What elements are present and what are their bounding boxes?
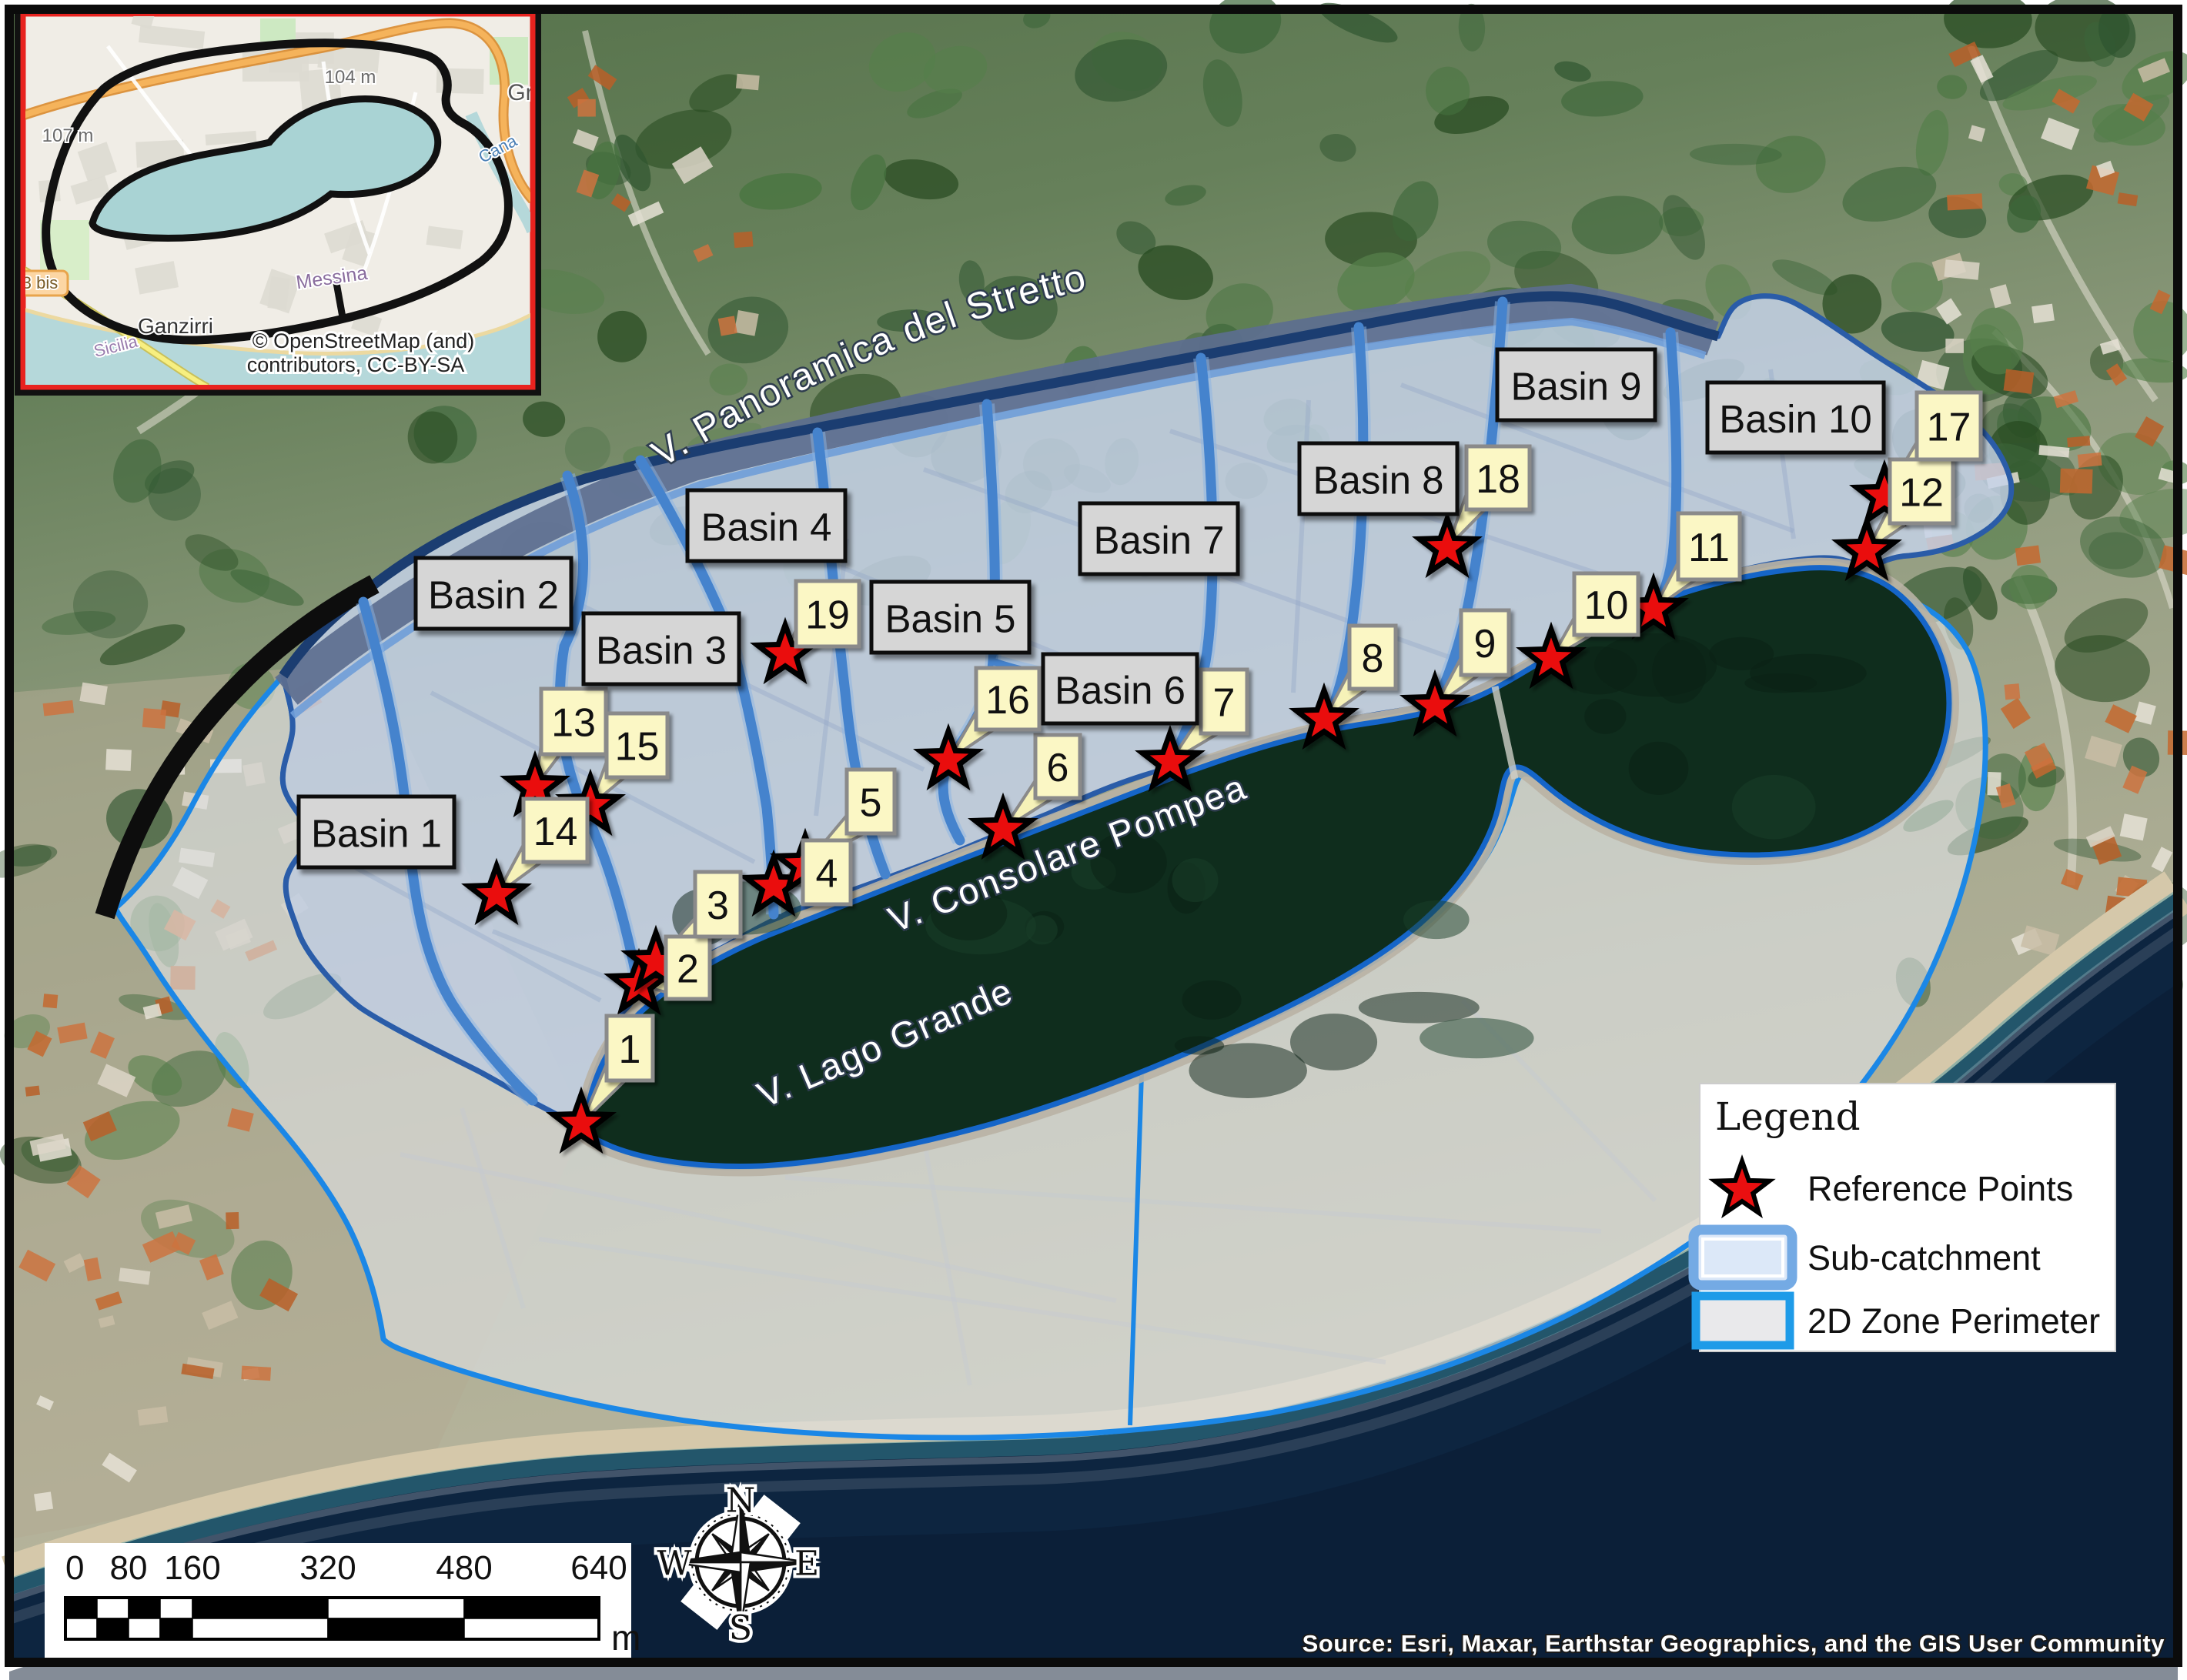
basin-label-text: Basin 1: [311, 812, 442, 856]
reference-number-text: 1: [619, 1027, 641, 1072]
reference-number-text: 11: [1688, 526, 1730, 570]
reference-number-text: 4: [816, 852, 838, 897]
scale-tick-label: 480: [436, 1549, 492, 1587]
reference-number-text: 7: [1213, 681, 1236, 726]
basin-label-text: Basin 9: [1510, 365, 1641, 409]
reference-number-text: 6: [1047, 746, 1069, 790]
scale-bar: 080160320480640m: [45, 1543, 640, 1660]
scale-tick-label: 80: [110, 1549, 148, 1587]
reference-number-text: 10: [1584, 583, 1629, 628]
compass-letter: N: [726, 1481, 756, 1521]
reference-number-text: 17: [1927, 406, 1971, 450]
reference-number-text: 5: [860, 781, 882, 826]
legend-2d-zone-swatch: [1696, 1296, 1790, 1345]
inset-place-label: Ganzirri: [138, 314, 213, 338]
reference-number-text: 14: [533, 810, 578, 854]
basin-label-text: Basin 4: [701, 506, 831, 549]
legend: LegendReference PointsSub-catchment2D Zo…: [1694, 1084, 2115, 1351]
inset-place-label: 104 m: [325, 67, 376, 88]
scale-tick-label: 0: [65, 1549, 84, 1587]
legend-item-2d-zone: 2D Zone Perimeter: [1807, 1301, 2100, 1341]
reference-number-text: 9: [1474, 622, 1496, 666]
legend-item-sub-catchment: Sub-catchment: [1807, 1238, 2041, 1278]
reference-number-text: 15: [615, 725, 660, 770]
compass-letter: S: [729, 1609, 752, 1648]
scale-tick-label: 320: [299, 1549, 356, 1587]
inset-place-label: Gr: [507, 80, 533, 105]
compass-letter: E: [794, 1545, 819, 1584]
reference-number-text: 13: [551, 701, 596, 746]
reference-number-text: 12: [1899, 471, 1944, 516]
source-credit-text: Source: Esri, Maxar, Earthstar Geographi…: [1303, 1630, 2165, 1657]
reference-number-text: 8: [1362, 636, 1384, 681]
basin-label-text: Basin 6: [1055, 669, 1185, 713]
reference-number-text: 18: [1476, 457, 1520, 502]
reference-number-text: 2: [677, 947, 699, 992]
inset-place-label: 107 m: [42, 125, 94, 146]
basin-label-text: Basin 10: [1719, 397, 1871, 441]
map-figure: V. Panoramica del StrettoV. Consolare Po…: [0, 0, 2187, 1680]
inset-map: 104 m107 mGrCana3 bisGanzirriMessinaSici…: [18, 0, 537, 392]
basin-label-text: Basin 2: [428, 573, 559, 617]
source-credit: Source: Esri, Maxar, Earthstar Geographi…: [1303, 1630, 2165, 1657]
basin-label-text: Basin 3: [596, 629, 727, 673]
inset-attribution-line1: © OpenStreetMap (and): [252, 329, 475, 352]
basin-label-text: Basin 7: [1093, 519, 1224, 563]
compass-letter: W: [657, 1545, 692, 1584]
scale-unit-label: m: [611, 1618, 640, 1658]
reference-number-text: 16: [985, 678, 1030, 723]
reference-number-text: 3: [707, 883, 729, 928]
inset-attribution-line2: contributors, CC-BY-SA: [247, 353, 465, 376]
legend-item-reference-points: Reference Points: [1807, 1169, 2073, 1208]
scale-tick-label: 160: [164, 1549, 220, 1587]
reference-number-text: 19: [805, 593, 850, 638]
inset-place-label: 3 bis: [22, 273, 58, 292]
basin-label-text: Basin 8: [1313, 459, 1443, 503]
scale-tick-label: 640: [570, 1549, 627, 1587]
basin-label-text: Basin 5: [884, 597, 1015, 641]
legend-title: Legend: [1715, 1094, 1861, 1139]
